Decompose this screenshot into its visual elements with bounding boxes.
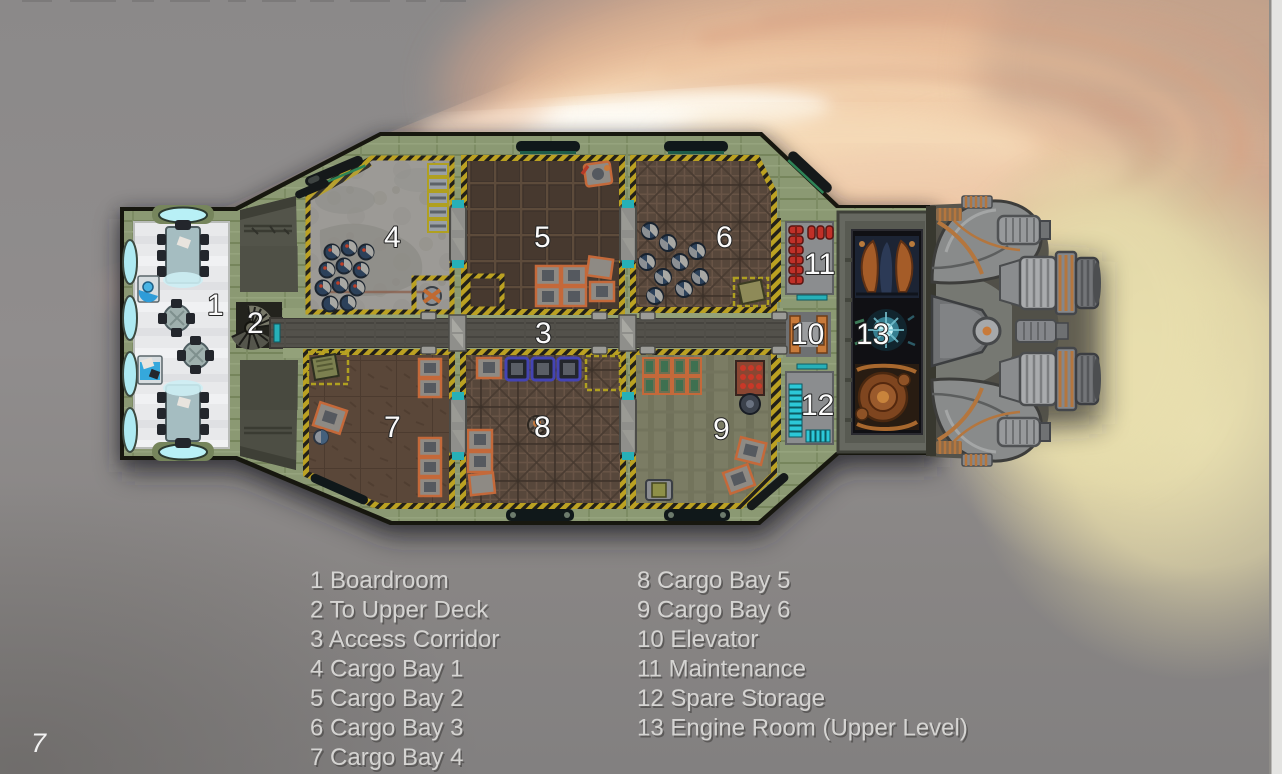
svg-text:11 Maintenance: 11 Maintenance [637,656,806,683]
svg-text:8: 8 [534,411,551,444]
svg-text:11: 11 [804,248,835,281]
svg-text:4 Cargo Bay 1: 4 Cargo Bay 1 [310,656,463,683]
svg-text:7 Cargo Bay 4: 7 Cargo Bay 4 [310,744,463,771]
svg-text:2: 2 [247,307,264,340]
svg-text:8 Cargo Bay 5: 8 Cargo Bay 5 [637,567,790,594]
svg-text:6 Cargo Bay 3: 6 Cargo Bay 3 [310,715,463,742]
svg-text:9: 9 [713,413,730,446]
svg-text:10 Elevator: 10 Elevator [637,626,758,653]
svg-text:6: 6 [716,221,733,254]
svg-text:5: 5 [534,221,551,254]
svg-text:3: 3 [535,317,552,350]
svg-text:2 To Upper Deck: 2 To Upper Deck [310,597,489,624]
svg-text:1: 1 [207,289,224,322]
svg-text:12: 12 [801,389,834,422]
svg-text:13 Engine Room (Upper Level): 13 Engine Room (Upper Level) [637,715,968,742]
svg-text:5 Cargo Bay 2: 5 Cargo Bay 2 [310,685,463,712]
svg-text:10: 10 [791,318,824,351]
svg-text:4: 4 [384,221,401,254]
svg-text:3 Access Corridor: 3 Access Corridor [310,626,499,653]
svg-text:7: 7 [31,728,47,758]
svg-text:12 Spare Storage: 12 Spare Storage [637,685,825,712]
svg-text:1 Boardroom: 1 Boardroom [310,567,449,594]
svg-text:7: 7 [384,411,401,444]
svg-text:9 Cargo Bay 6: 9 Cargo Bay 6 [637,597,790,624]
svg-text:13: 13 [856,318,889,351]
